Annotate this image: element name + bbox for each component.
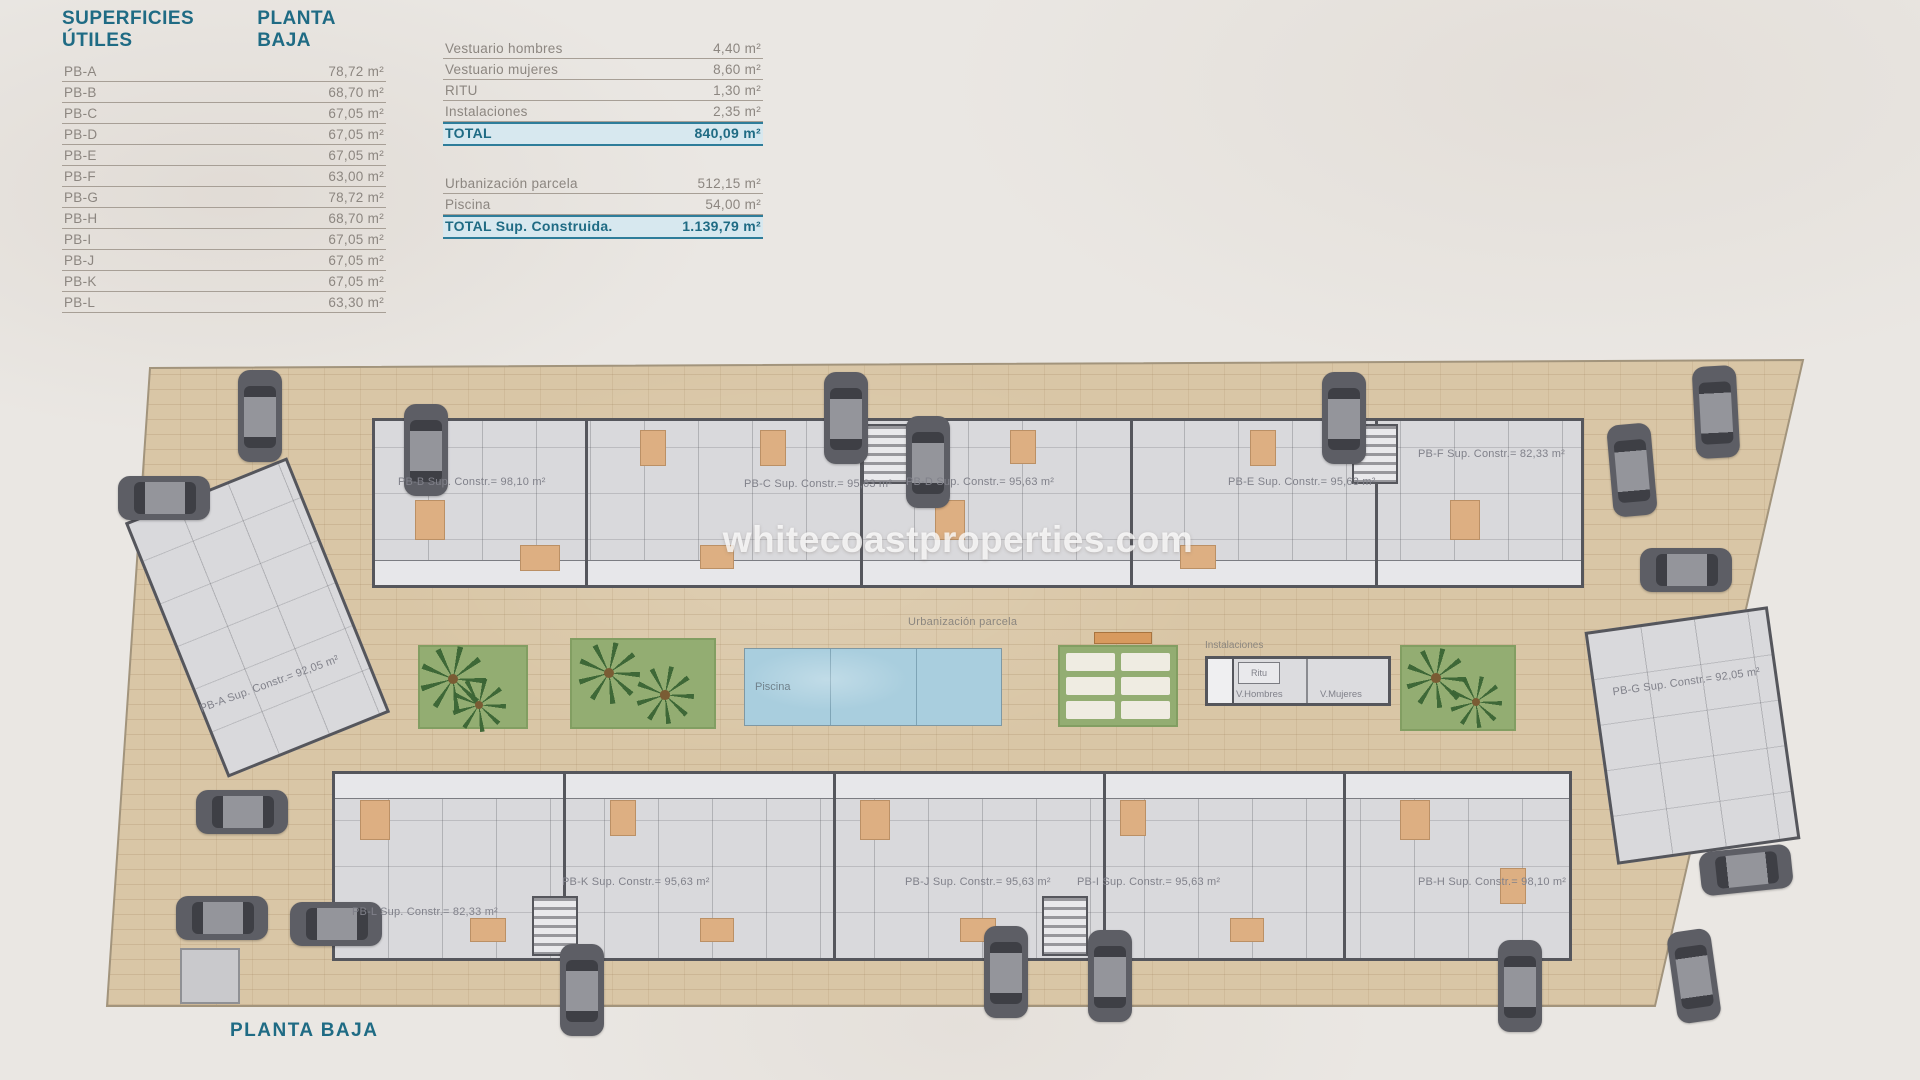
palm-tree-icon xyxy=(578,642,640,704)
stairs-icon xyxy=(862,424,908,484)
palm-tree-icon xyxy=(1450,676,1502,728)
car-icon xyxy=(1666,927,1722,1024)
bed-icon xyxy=(1250,430,1276,466)
lounger-icon xyxy=(1121,701,1170,719)
unit-label-pb-e: PB-E Sup. Constr.= 95,63 m² xyxy=(1228,476,1376,488)
unit-label-pb-f: PB-F Sup. Constr.= 82,33 m² xyxy=(1418,448,1565,460)
bed-icon xyxy=(360,800,390,840)
floor-plan: Piscina Instalaciones Ritu V.Hombres V.M… xyxy=(0,0,1920,1080)
building-bottom-row xyxy=(332,771,1572,961)
lounger-icon xyxy=(1121,677,1170,695)
lounger-icon xyxy=(1066,701,1115,719)
partition-wall xyxy=(1306,659,1308,703)
bed-icon xyxy=(860,800,890,840)
unit-divider xyxy=(1343,774,1346,958)
car-icon xyxy=(1088,930,1132,1022)
car-icon xyxy=(1322,372,1366,464)
car-icon xyxy=(1606,422,1658,517)
vestuario-mujeres-label: V.Mujeres xyxy=(1320,689,1362,700)
car-icon xyxy=(176,896,268,940)
palm-tree-icon xyxy=(636,666,694,724)
pool-label: Piscina xyxy=(755,681,790,693)
ramp-area xyxy=(180,948,240,1004)
car-icon xyxy=(906,416,950,508)
bench-icon xyxy=(1094,632,1152,644)
bed-icon xyxy=(1010,430,1036,464)
bed-icon xyxy=(1400,800,1430,840)
swimming-pool: Piscina xyxy=(744,648,1002,726)
bed-icon xyxy=(610,800,636,836)
unit-label-pb-j: PB-J Sup. Constr.= 95,63 m² xyxy=(905,876,1051,888)
wc-cell xyxy=(1208,659,1234,703)
lounger-icon xyxy=(1121,653,1170,671)
urbanizacion-label: Urbanización parcela xyxy=(908,616,1017,628)
ritu-room: Ritu xyxy=(1238,662,1280,684)
car-icon xyxy=(1640,548,1732,592)
bed-icon xyxy=(415,500,445,540)
stairs-icon xyxy=(1042,896,1088,956)
unit-label-pb-l: PB-L Sup. Constr.= 82,33 m² xyxy=(352,906,498,918)
unit-label-pb-b: PB-B Sup. Constr.= 98,10 m² xyxy=(398,476,546,488)
car-icon xyxy=(196,790,288,834)
car-icon xyxy=(984,926,1028,1018)
vestuario-hombres-label: V.Hombres xyxy=(1236,689,1283,700)
building-unit-g xyxy=(1585,606,1801,864)
unit-divider xyxy=(585,421,588,585)
bed-icon xyxy=(1450,500,1480,540)
lounger-icon xyxy=(1066,677,1115,695)
bed-icon xyxy=(760,430,786,466)
car-icon xyxy=(118,476,210,520)
plan-title: PLANTA BAJA xyxy=(230,1020,378,1042)
unit-label-pb-k: PB-K Sup. Constr.= 95,63 m² xyxy=(562,876,710,888)
facilities-block: Ritu V.Hombres V.Mujeres xyxy=(1205,656,1391,706)
instalaciones-label: Instalaciones xyxy=(1205,640,1263,651)
sofa-icon xyxy=(520,545,560,571)
bed-icon xyxy=(640,430,666,466)
lounger-icon xyxy=(1066,653,1115,671)
sun-lounger-area xyxy=(1058,645,1178,727)
unit-label-pb-d: PB-D Sup. Constr.= 95,63 m² xyxy=(906,476,1054,488)
unit-divider xyxy=(833,774,836,958)
watermark: whitecoastproperties.com xyxy=(723,519,1194,561)
unit-label-pb-i: PB-I Sup. Constr.= 95,63 m² xyxy=(1077,876,1220,888)
page: SUPERFICIES ÚTILES PLANTA BAJA PB-A78,72… xyxy=(0,0,1920,1080)
car-icon xyxy=(1692,365,1741,459)
bed-icon xyxy=(1120,800,1146,836)
car-icon xyxy=(238,370,282,462)
sofa-icon xyxy=(470,918,506,942)
unit-label-pb-c: PB-C Sup. Constr.= 95,63 m² xyxy=(744,478,892,490)
sofa-icon xyxy=(1230,918,1264,942)
unit-label-pb-h: PB-H Sup. Constr.= 98,10 m² xyxy=(1418,876,1566,888)
sofa-icon xyxy=(700,918,734,942)
car-icon xyxy=(1698,843,1794,896)
car-icon xyxy=(1498,940,1542,1032)
terrace-strip xyxy=(335,774,1569,799)
car-icon xyxy=(560,944,604,1036)
palm-tree-icon xyxy=(452,678,506,732)
car-icon xyxy=(824,372,868,464)
